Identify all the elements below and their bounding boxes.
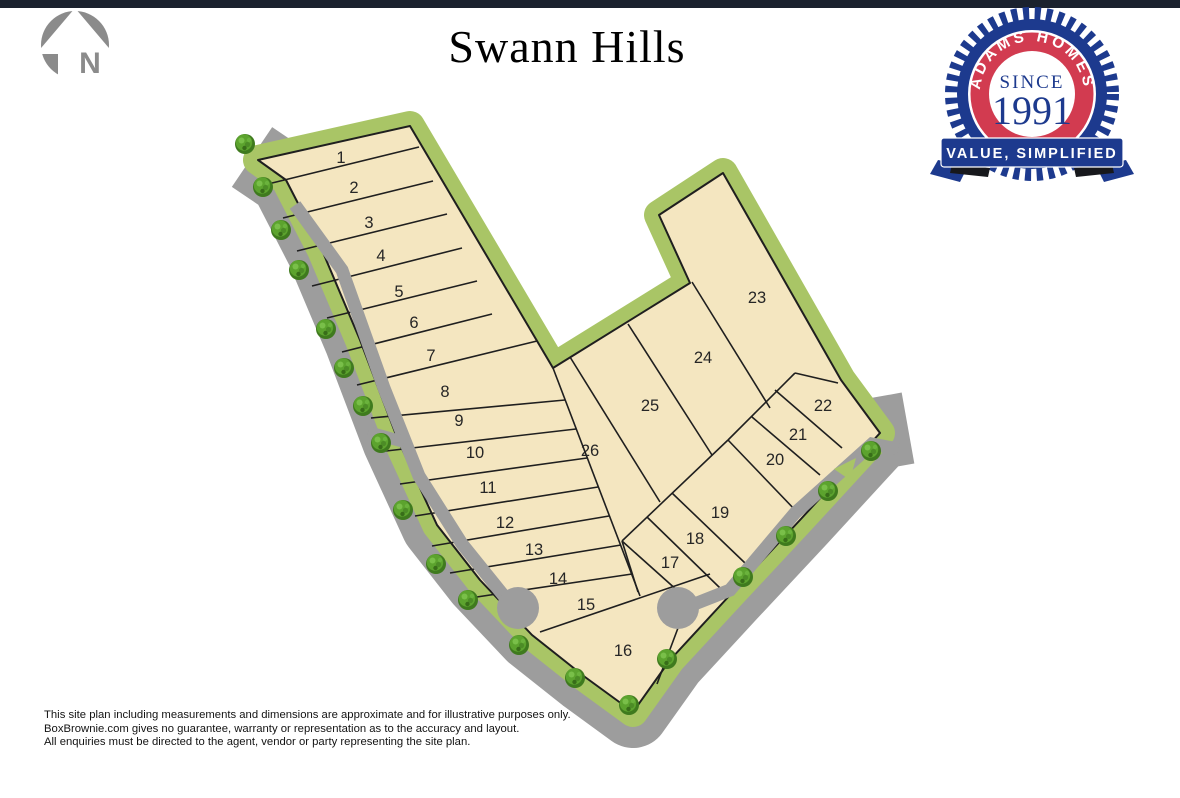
tree-icon [657, 649, 677, 669]
adams-homes-badge: ADAMS HOMES SINCE 1991 VALUE, SIMPLIFIED [930, 14, 1134, 182]
tree-icon [316, 319, 336, 339]
tree-icon [289, 260, 309, 280]
lot-label-7: 7 [426, 347, 435, 365]
tree-icon [353, 396, 373, 416]
disclaimer-line-1: This site plan including measurements an… [44, 709, 571, 723]
lot-label-2: 2 [349, 179, 358, 197]
lot-label-24: 24 [694, 349, 712, 367]
lot-label-10: 10 [466, 444, 484, 462]
tree-icon [334, 358, 354, 378]
lot-label-12: 12 [496, 514, 514, 532]
lot-label-22: 22 [814, 397, 832, 415]
north-arrow-icon: N [36, 8, 114, 82]
badge-ribbon: VALUE, SIMPLIFIED [930, 138, 1134, 182]
lot-label-8: 8 [440, 383, 449, 401]
disclaimer-line-3: All enquiries must be directed to the ag… [44, 736, 571, 750]
west-cul-de-sac [497, 587, 539, 629]
lot-label-3: 3 [364, 214, 373, 232]
tree-icon [458, 590, 478, 610]
tree-icon [776, 526, 796, 546]
site-plan-page: Swann Hills [0, 0, 1180, 798]
tree-icon [818, 481, 838, 501]
site-plan-canvas: 1 2 3 4 5 6 7 8 9 10 11 12 13 14 15 16 1… [0, 0, 1180, 798]
tree-icon [393, 500, 413, 520]
disclaimer-text: This site plan including measurements an… [44, 709, 571, 750]
tree-icon [565, 668, 585, 688]
tree-icon [235, 134, 255, 154]
tree-icon [509, 635, 529, 655]
east-cul-de-sac [657, 587, 699, 629]
badge-year: 1991 [992, 88, 1072, 133]
north-label: N [79, 47, 101, 80]
disclaimer-line-2: BoxBrownie.com gives no guarantee, warra… [44, 723, 571, 737]
tree-icon [271, 220, 291, 240]
lot-label-9: 9 [454, 412, 463, 430]
lot-label-18: 18 [686, 530, 704, 548]
lot-label-17: 17 [661, 554, 679, 572]
lot-label-20: 20 [766, 451, 784, 469]
lot-label-13: 13 [525, 541, 543, 559]
tree-icon [426, 554, 446, 574]
tree-icon [861, 441, 881, 461]
parcel-boundary [258, 126, 880, 712]
lot-label-1: 1 [336, 149, 345, 167]
lot-label-14: 14 [549, 570, 567, 588]
tree-icon [371, 433, 391, 453]
lot-label-5: 5 [394, 283, 403, 301]
lot-label-26: 26 [581, 442, 599, 460]
lot-label-21: 21 [789, 426, 807, 444]
badge-tagline: VALUE, SIMPLIFIED [946, 146, 1118, 162]
lot-label-16: 16 [614, 642, 632, 660]
tree-icon [733, 567, 753, 587]
site-plan-map: 1 2 3 4 5 6 7 8 9 10 11 12 13 14 15 16 1… [235, 126, 908, 715]
tree-icon [253, 177, 273, 197]
lot-label-23: 23 [748, 289, 766, 307]
lot-label-6: 6 [409, 314, 418, 332]
lot-label-11: 11 [479, 479, 496, 497]
lot-label-4: 4 [376, 247, 385, 265]
tree-icon [619, 695, 639, 715]
lot-label-19: 19 [711, 504, 729, 522]
lot-label-25: 25 [641, 397, 659, 415]
lot-label-15: 15 [577, 596, 595, 614]
